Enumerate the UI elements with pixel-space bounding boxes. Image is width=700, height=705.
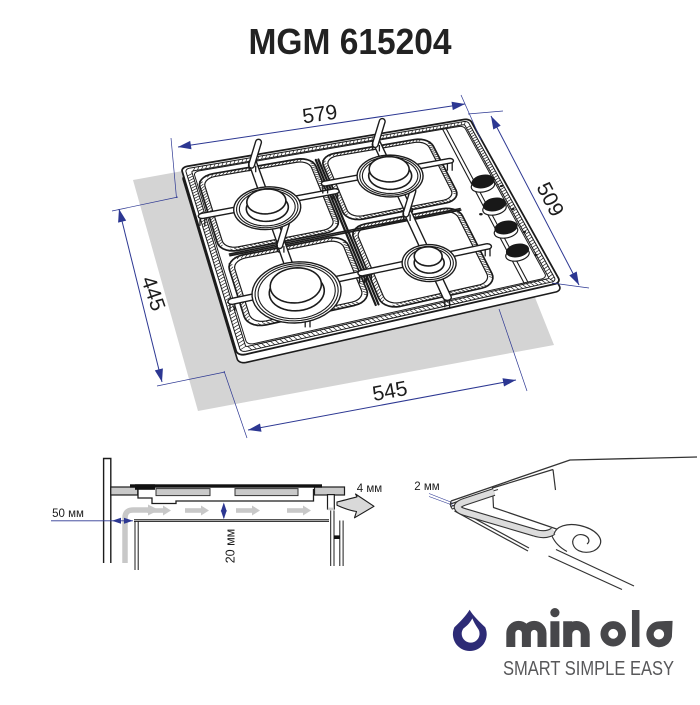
svg-text:2 мм: 2 мм [414, 481, 439, 493]
svg-text:4 мм: 4 мм [357, 483, 382, 495]
svg-text:SMART SIMPLE EASY: SMART SIMPLE EASY [503, 657, 674, 680]
svg-text:20 мм: 20 мм [223, 529, 237, 564]
svg-text:MGM 615204: MGM 615204 [249, 21, 453, 62]
svg-text:50 мм: 50 мм [52, 508, 84, 520]
